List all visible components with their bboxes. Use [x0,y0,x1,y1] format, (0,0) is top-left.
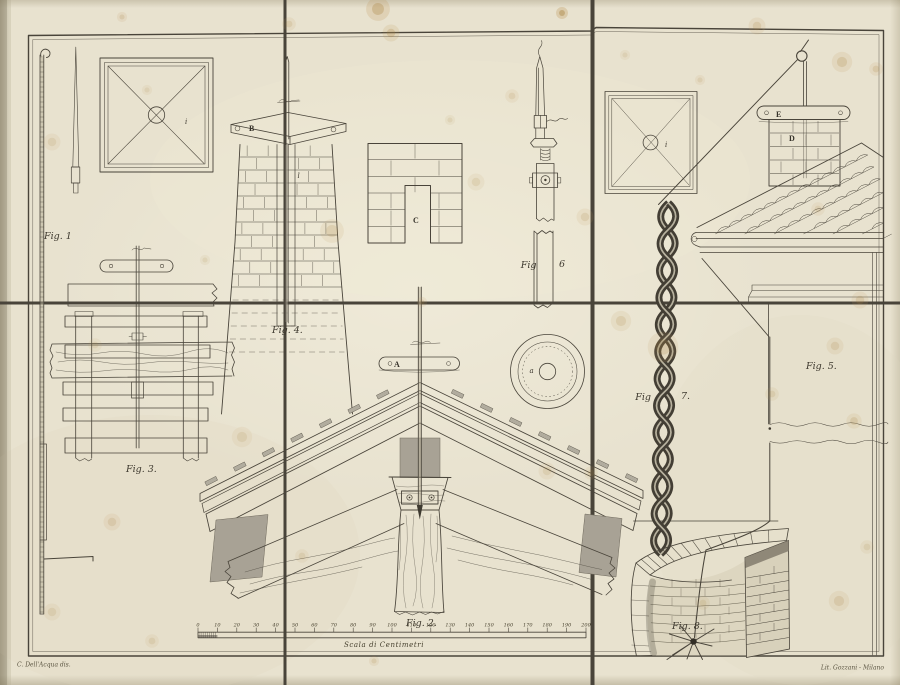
roof-tiles-part [745,167,874,234]
stain [700,600,707,607]
fig5-building-corner-part [765,111,769,115]
fig2-roof-ridge-part [447,536,602,585]
stain [372,3,384,15]
rod-body [40,56,43,613]
plan-collar-ring-part [539,363,555,379]
fig2-roof-ridge-part [388,362,392,366]
scale-tick-label: 150 [484,622,494,628]
scanned-plate: Fig. 1 i Fig. 3. [0,0,900,685]
stain [202,257,207,262]
stain [815,206,822,213]
chimney-rod [804,62,807,107]
scale-tick-label: 180 [542,622,552,628]
stain [697,77,702,82]
rod-ring [797,51,807,61]
scale-tick-label: 170 [523,622,533,628]
roof-battens-part [625,474,638,483]
earth-star-part [690,638,696,644]
fig5-building-corner-part [769,427,772,430]
fig5-label: Fig. 5. [805,361,837,372]
stain [753,22,762,31]
stain [850,417,858,425]
stain [387,29,396,38]
stain [472,178,481,187]
fig3-timber-frame-part [132,333,143,340]
fig1-label: Fig. 1 [43,231,72,242]
fig4-masonry-tower-part [285,145,288,322]
stain [108,518,117,527]
scale-tick-label: 120 [426,622,436,628]
roof-tiles-part [884,234,892,238]
fig2-roof-ridge-part [431,497,433,499]
stain [769,391,776,398]
stain [149,638,156,645]
stain [237,432,247,442]
stain [616,316,626,326]
fig2-roof-ridge-part [409,497,411,499]
stain [286,21,293,28]
stain [856,296,865,305]
scale-tick-label: 20 [233,622,241,628]
fig3-timber-frame-part [109,264,112,267]
stain [864,544,871,551]
roof-battens-part [451,389,464,398]
fig2-roof-ridge-part [447,362,451,366]
paper-texture-part [0,415,360,685]
fig3-timber-frame-part [58,360,228,364]
stain [419,299,424,304]
fig8-well-part [632,630,650,631]
stain [873,66,880,73]
letter-D: D [789,134,795,143]
fig3-timber-frame-part [56,367,228,373]
fig8-well-part [632,600,650,601]
scale-tick-label: 130 [445,622,455,628]
paper-texture-part [7,0,11,685]
plan2-letter: i [665,141,667,149]
fig6-label-a: Fig [520,260,537,271]
fig3-timber-frame-part [132,248,151,250]
fig8-well-part [649,582,653,653]
roof-battens-part [319,419,332,428]
fig3-label: Fig. 3. [125,464,157,475]
fig8-well-part [632,585,650,586]
lithographer-credit: Lit. Gozzani - Milano [820,665,884,672]
rod-tip [801,40,809,52]
letter-A: A [394,360,400,369]
fig3-timber-frame-part [160,264,163,267]
eave-lines [696,233,884,253]
roof-battens-part [509,417,522,426]
letter-l: l [298,172,300,180]
scale-tick-label: 60 [311,622,318,628]
fig5-building-corner-part [759,122,848,124]
scale-tick-label: 40 [271,622,279,628]
needle-socket [71,167,80,183]
chimney-cap-E [757,106,850,120]
roof-battens-part [480,403,493,412]
chimney-body-D [769,120,840,187]
stain [447,117,452,122]
needle-point [73,47,79,167]
rail [65,345,210,358]
stain [48,608,57,617]
scale-tick-label: 110 [407,622,417,628]
fig2-roof-ridge-part [411,341,441,344]
fig7-label-b: 7. [681,391,690,402]
roof-battens-part [596,460,609,469]
tip-wire [538,41,542,57]
scale-tick-label: 190 [562,622,572,628]
scale-tick-label: 80 [350,622,357,628]
scale-tick-label: 140 [465,622,475,628]
roof-battens-part [567,445,580,454]
king-post [395,510,445,613]
stain [655,339,670,354]
artist-credit: C. Dell'Acqua dis. [17,662,71,669]
scale-tick-label: 100 [387,622,397,628]
roof-battens-part [348,404,361,413]
scale-tick-label: 70 [331,622,338,628]
scale-tick-label: 90 [369,622,376,628]
roof-tiles-part [774,179,880,234]
stain [92,342,99,349]
fig6-rod-joints-part [544,179,546,181]
scale-tick-label: 50 [292,622,299,628]
rail [63,382,213,395]
stain [834,596,844,606]
paper-texture-part [0,0,7,685]
scale-tick-label: 10 [214,622,221,628]
rod-point [417,505,423,520]
stain [299,553,306,560]
stain [581,213,590,222]
stain [543,467,552,476]
conductor-diagonal [702,259,769,337]
plan-collar-ring-part [511,335,585,409]
scale-tick-label: 200 [580,622,591,628]
stain [559,10,565,16]
stain [831,342,840,351]
scale-tick-label: 30 [253,622,260,628]
letter-C: C [413,216,419,225]
letter-E: E [776,110,781,119]
roof-battens-part [291,433,304,442]
plan-collar-ring: a [511,335,585,409]
fig2-roof-ridge-part [419,287,422,505]
fig1-measuring-rod-part [74,183,79,193]
stain [837,57,847,67]
wall-block-right [579,514,622,577]
ring-letter: a [530,367,534,375]
stain [119,14,124,19]
fig4-label: Fig. 4. [271,325,303,336]
stain [144,87,149,92]
scale-caption: Scala di Centimetri [344,641,424,649]
rod-joint [132,382,144,398]
letter-B: B [249,124,255,133]
roof-battens-part [376,390,389,399]
plan1-letter: i [185,118,187,126]
fig7-label-a: Fig [634,392,651,403]
fig8-label: Fig. 8. [671,621,703,632]
fig6-label-b: 6 [559,259,565,270]
stain [326,225,338,237]
engraving-plate: Fig. 1 i Fig. 3. [0,0,900,685]
stain [48,138,57,147]
stain [509,93,516,100]
scale-tick-label: 160 [504,622,514,628]
plan-collar-ring-part [518,342,577,401]
stain [371,658,376,663]
fig5-building-corner-part [839,111,843,115]
fig3-timber-frame-part [56,349,228,356]
stain [588,470,595,477]
stain [622,52,627,57]
roof-battens-part [538,431,551,440]
